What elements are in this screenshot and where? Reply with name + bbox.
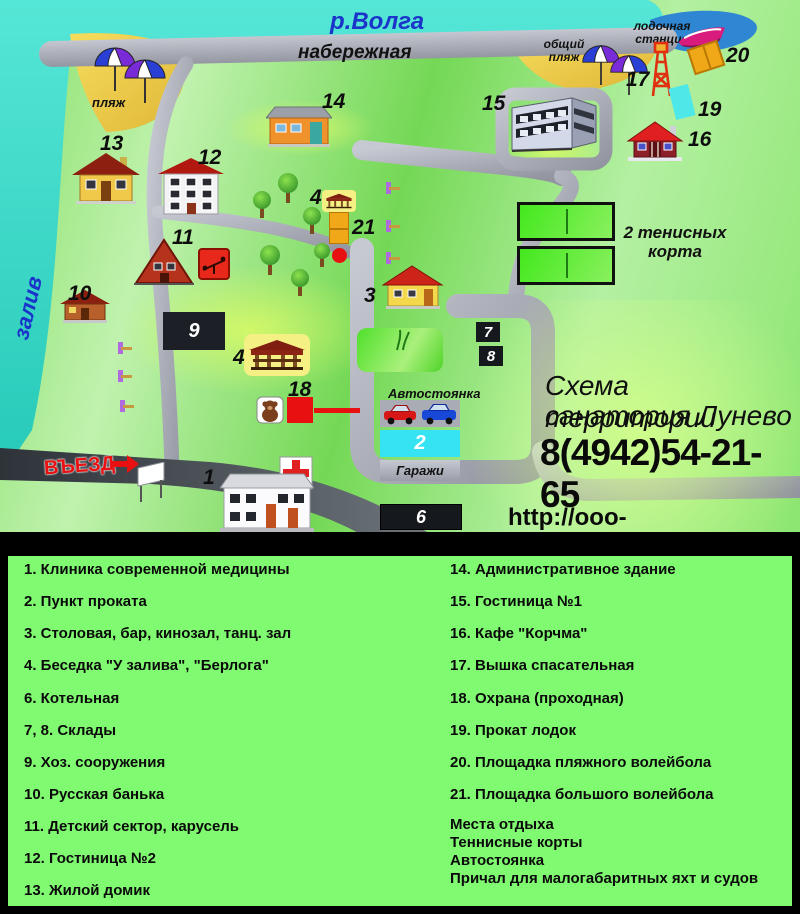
marker-10: 10: [68, 282, 91, 306]
marker-6: 6: [416, 507, 426, 528]
garages: Гаражи: [380, 460, 460, 481]
map-area: р.Волга залив набережная пляж общий пляж…: [0, 0, 800, 535]
carousel-icon: [198, 248, 230, 280]
utility-block-9: 9: [163, 312, 225, 350]
cars-icon: [380, 400, 460, 427]
marker-16: 16: [688, 128, 711, 152]
river-label: р.Волга: [330, 8, 424, 36]
legend-extra-item: Места отдыха: [450, 816, 554, 833]
warehouse-7: 7: [476, 322, 500, 342]
red-circle-marker: [332, 248, 347, 263]
tennis-court: [517, 246, 615, 285]
legend-extra-item: Теннисные корты: [450, 834, 582, 851]
parking-label: Автостоянка: [388, 386, 480, 401]
marker-4: 4: [233, 346, 245, 370]
sanatorium-map-poster: р.Волга залив набережная пляж общий пляж…: [0, 0, 800, 914]
marker-19: 19: [698, 98, 721, 122]
rest-field: [357, 328, 443, 372]
clinic-building-icon: [220, 470, 314, 532]
legend-item: 13. Жилой домик: [24, 882, 150, 899]
legend-item: 20. Площадка пляжного волейбола: [450, 754, 711, 771]
marker-11: 11: [172, 226, 194, 250]
marker-12: 12: [198, 146, 221, 170]
legend-item: 11. Детский сектор, карусель: [24, 818, 239, 835]
legend-item: 17. Вышка спасательная: [450, 657, 634, 674]
entrance-label: ВЪЕЗД: [43, 453, 115, 481]
marker-9: 9: [188, 320, 199, 343]
website-url: http://ooo-sanatoriy.ru/lunevo: [508, 504, 800, 535]
marker-13: 13: [100, 132, 123, 156]
legend-item: 6. Котельная: [24, 690, 119, 707]
marker-14: 14: [322, 90, 345, 114]
legend-extra-item: Автостоянка: [450, 852, 544, 869]
legend-panel: 1. Клиника современной медицины 2. Пункт…: [8, 556, 792, 906]
marker-15: 15: [482, 92, 505, 116]
marker-2: 2: [414, 432, 425, 455]
bear-icon: [256, 396, 284, 424]
legend-item: 12. Гостиница №2: [24, 850, 156, 867]
pavilion-icon: [248, 338, 306, 372]
volleyball-court-21: [329, 212, 349, 244]
legend-item: 3. Столовая, бар, кинозал, танц. зал: [24, 625, 291, 642]
marker-1: 1: [203, 466, 215, 490]
marker-4b: 4: [310, 186, 322, 210]
umbrella-icon: [122, 56, 168, 104]
tennis-court: [517, 202, 615, 241]
legend-extra-item: Причал для малогабаритных яхт и судов: [450, 870, 758, 887]
beach-label: пляж: [92, 95, 125, 110]
boiler-house-6: 6: [380, 504, 462, 530]
marker-21: 21: [352, 216, 375, 240]
legend-section: 1. Клиника современной медицины 2. Пункт…: [0, 532, 800, 914]
marker-3: 3: [364, 284, 376, 308]
legend-item: 7, 8. Склады: [24, 722, 116, 739]
legend-item: 19. Прокат лодок: [450, 722, 576, 739]
embankment-label: набережная: [298, 42, 412, 64]
marker-17: 17: [626, 68, 649, 92]
marker-20: 20: [726, 44, 749, 68]
legend-item: 16. Кафе "Корчма": [450, 625, 587, 642]
legend-item: 10. Русская банька: [24, 786, 164, 803]
parking-lot: [380, 400, 460, 427]
legend-item: 15. Гостиница №1: [450, 593, 582, 610]
rental-point-2: 2: [380, 430, 460, 457]
legend-item: 9. Хоз. сооружения: [24, 754, 165, 771]
marker-8: 8: [487, 348, 495, 365]
garages-label: Гаражи: [396, 463, 444, 478]
tennis-label: 2 тенисных корта: [620, 224, 730, 261]
legend-item: 21. Площадка большого волейбола: [450, 786, 714, 803]
barrier-line: [314, 408, 360, 413]
warehouse-8: 8: [479, 346, 503, 366]
legend-item: 4. Беседка "У залива", "Берлога": [24, 657, 269, 674]
dining-building-icon: [382, 264, 444, 310]
legend-item: 1. Клиника современной медицины: [24, 561, 290, 578]
gate-sign-icon: [134, 462, 168, 504]
map-title-line2: санатория Лунево: [545, 400, 792, 432]
pavilion-icon: [325, 192, 353, 210]
legend-item: 18. Охрана (проходная): [450, 690, 624, 707]
hotel-1-building-icon: [508, 92, 600, 156]
legend-item: 14. Административное здание: [450, 561, 676, 578]
cafe-korchma-icon: [626, 116, 684, 164]
house-13-icon: [70, 148, 142, 206]
marker-18: 18: [288, 378, 311, 402]
marker-7: 7: [484, 324, 492, 341]
legend-item: 2. Пункт проката: [24, 593, 147, 610]
